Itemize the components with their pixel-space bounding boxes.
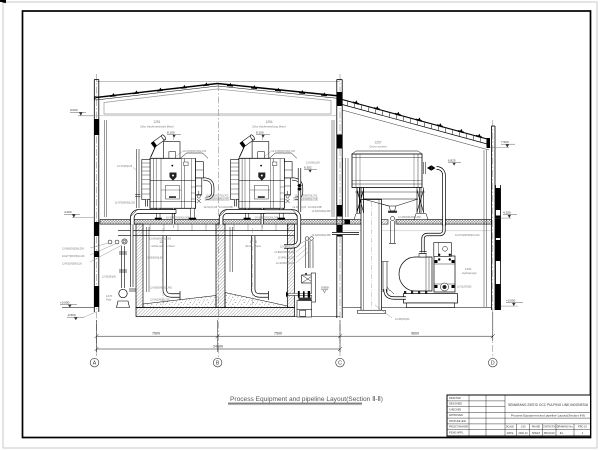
svg-text:12-47(DN)L05: 12-47(DN)L05 [117, 165, 133, 168]
svg-text:10-E77(DN70K)L120: 10-E77(DN70K)L120 [62, 255, 85, 258]
svg-text:1270: 1270 [106, 294, 113, 298]
svg-text:12-080(DN250)L450: 12-080(DN250)L450 [398, 216, 421, 219]
svg-text:12-92(DN)05: 12-92(DN)05 [102, 275, 116, 278]
svg-text:PRC1010: PRC1010 [544, 432, 555, 435]
svg-text:7.500: 7.500 [501, 140, 509, 144]
svg-text:12-R2(DN55K)L20: 12-R2(DN55K)L20 [62, 263, 82, 266]
svg-text:12-070(DN700)L720: 12-070(DN700)L720 [183, 149, 207, 153]
svg-text:+0.000: +0.000 [60, 301, 70, 305]
svg-text:PRC-10: PRC-10 [578, 426, 588, 429]
svg-text:12-070(DN085)L705: 12-070(DN085)L705 [206, 198, 229, 201]
svg-text:ⅡA.: ⅡA. [560, 432, 564, 435]
svg-text:12-040L03B: 12-040L03B [219, 206, 233, 209]
svg-text:2020.10: 2020.10 [518, 432, 528, 435]
svg-text:12-0A(DN08)L225: 12-0A(DN08)L225 [150, 299, 170, 302]
svg-text:12-050(DN)L05: 12-050(DN)L05 [146, 257, 163, 260]
svg-text:12-079(DN05)L200: 12-079(DN05)L200 [115, 202, 136, 205]
svg-text:CHECKED: CHECKED [449, 408, 461, 411]
svg-text:D: D [491, 360, 495, 366]
svg-text:Drum screen: Drum screen [369, 145, 387, 149]
svg-text:12-01(DN)30: 12-01(DN)30 [457, 286, 472, 289]
svg-text:Process Equipment and pipeline: Process Equipment and pipeline Layout(Se… [230, 396, 383, 403]
svg-text:SCALE: SCALE [506, 426, 515, 429]
svg-text:1251: 1251 [153, 120, 160, 124]
svg-text:SHEET: SHEET [532, 432, 541, 435]
svg-text:12-0HA(L)05: 12-0HA(L)05 [306, 161, 320, 164]
svg-text:A: A [93, 360, 97, 366]
svg-text:Disc thickener(start fiber): Disc thickener(start fiber) [140, 125, 173, 129]
svg-text:12-060(DN055)L450: 12-060(DN055)L450 [150, 287, 172, 290]
svg-text:DRAWING No.: DRAWING No. [557, 426, 574, 429]
svg-text:APPROVED: APPROVED [449, 414, 463, 417]
svg-text:16-SLB(DN300)L308: 16-SLB(DN300)L308 [166, 216, 190, 219]
svg-text:24400: 24400 [213, 344, 223, 348]
svg-text:SEMARANG 250T/D OCC PULPING LI: SEMARANG 250T/D OCC PULPING LINE,INDONES… [508, 403, 588, 407]
svg-text:DISCIPLINE LEAD: DISCIPLINE LEAD [449, 420, 466, 423]
svg-text:6.825: 6.825 [448, 159, 456, 163]
svg-text:12-0A0(DN055)L300: 12-0A0(DN055)L300 [149, 238, 172, 241]
svg-text:6.302: 6.302 [304, 166, 312, 170]
svg-text:12-6(DN300)L380: 12-6(DN300)L380 [312, 234, 332, 237]
svg-text:12-SL(N.)03: 12-SL(N.)03 [204, 206, 218, 209]
svg-text:4.200: 4.200 [503, 211, 511, 215]
svg-text:B: B [216, 360, 220, 366]
svg-text:DRAFTED: DRAFTED [449, 397, 461, 400]
svg-text:12-85(DN)30: 12-85(DN)30 [395, 318, 410, 321]
svg-text:-0.500: -0.500 [67, 313, 76, 317]
svg-text:8.100: 8.100 [167, 131, 175, 135]
svg-text:0.900: 0.900 [321, 286, 329, 290]
svg-text:CONSTRUCTION: CONSTRUCTION [543, 426, 556, 429]
svg-text:12-070(DN300)CL410: 12-070(DN300)CL410 [455, 234, 480, 237]
svg-text:9.000: 9.000 [70, 108, 78, 112]
svg-text:12-B0(DN055)L290: 12-B0(DN055)L290 [274, 251, 295, 254]
svg-text:Process Equipment and pipeline: Process Equipment and pipeline Layout(Se… [511, 413, 585, 417]
svg-text:1:50: 1:50 [521, 426, 526, 429]
svg-text:+0.000: +0.000 [506, 299, 516, 303]
svg-text:8.100: 8.100 [256, 131, 264, 135]
svg-text:PHASE: PHASE [532, 426, 541, 429]
svg-text:DATE: DATE [507, 432, 514, 435]
svg-text:C: C [338, 360, 342, 366]
svg-text:7500: 7500 [274, 332, 282, 336]
svg-text:9600: 9600 [411, 332, 419, 336]
svg-text:1254: 1254 [265, 120, 272, 124]
svg-text:DESIGNED: DESIGNED [449, 403, 462, 406]
svg-text:4.200: 4.200 [64, 210, 72, 214]
svg-text:PROJECT MANAGER: PROJECT MANAGER [449, 426, 468, 429]
svg-text:12-0PA(70)L250: 12-0PA(70)L250 [278, 257, 296, 260]
svg-text:P.ENG APPL: P.ENG APPL [449, 431, 464, 434]
svg-text:Disc thickener(long fiber): Disc thickener(long fiber) [252, 125, 285, 129]
svg-text:12-40(DN90)L200: 12-40(DN90)L200 [276, 262, 296, 265]
svg-text:Pulp: Pulp [106, 298, 112, 302]
svg-text:Hydrapurge: Hydrapurge [462, 271, 477, 275]
svg-text:12-6(DN300)L380: 12-6(DN300)L380 [312, 210, 332, 213]
svg-text:12-096(DN300)L200: 12-096(DN300)L200 [62, 248, 84, 251]
svg-text:12-0BH(L)025: 12-0BH(L)025 [280, 246, 296, 249]
svg-text:7500: 7500 [152, 332, 160, 336]
